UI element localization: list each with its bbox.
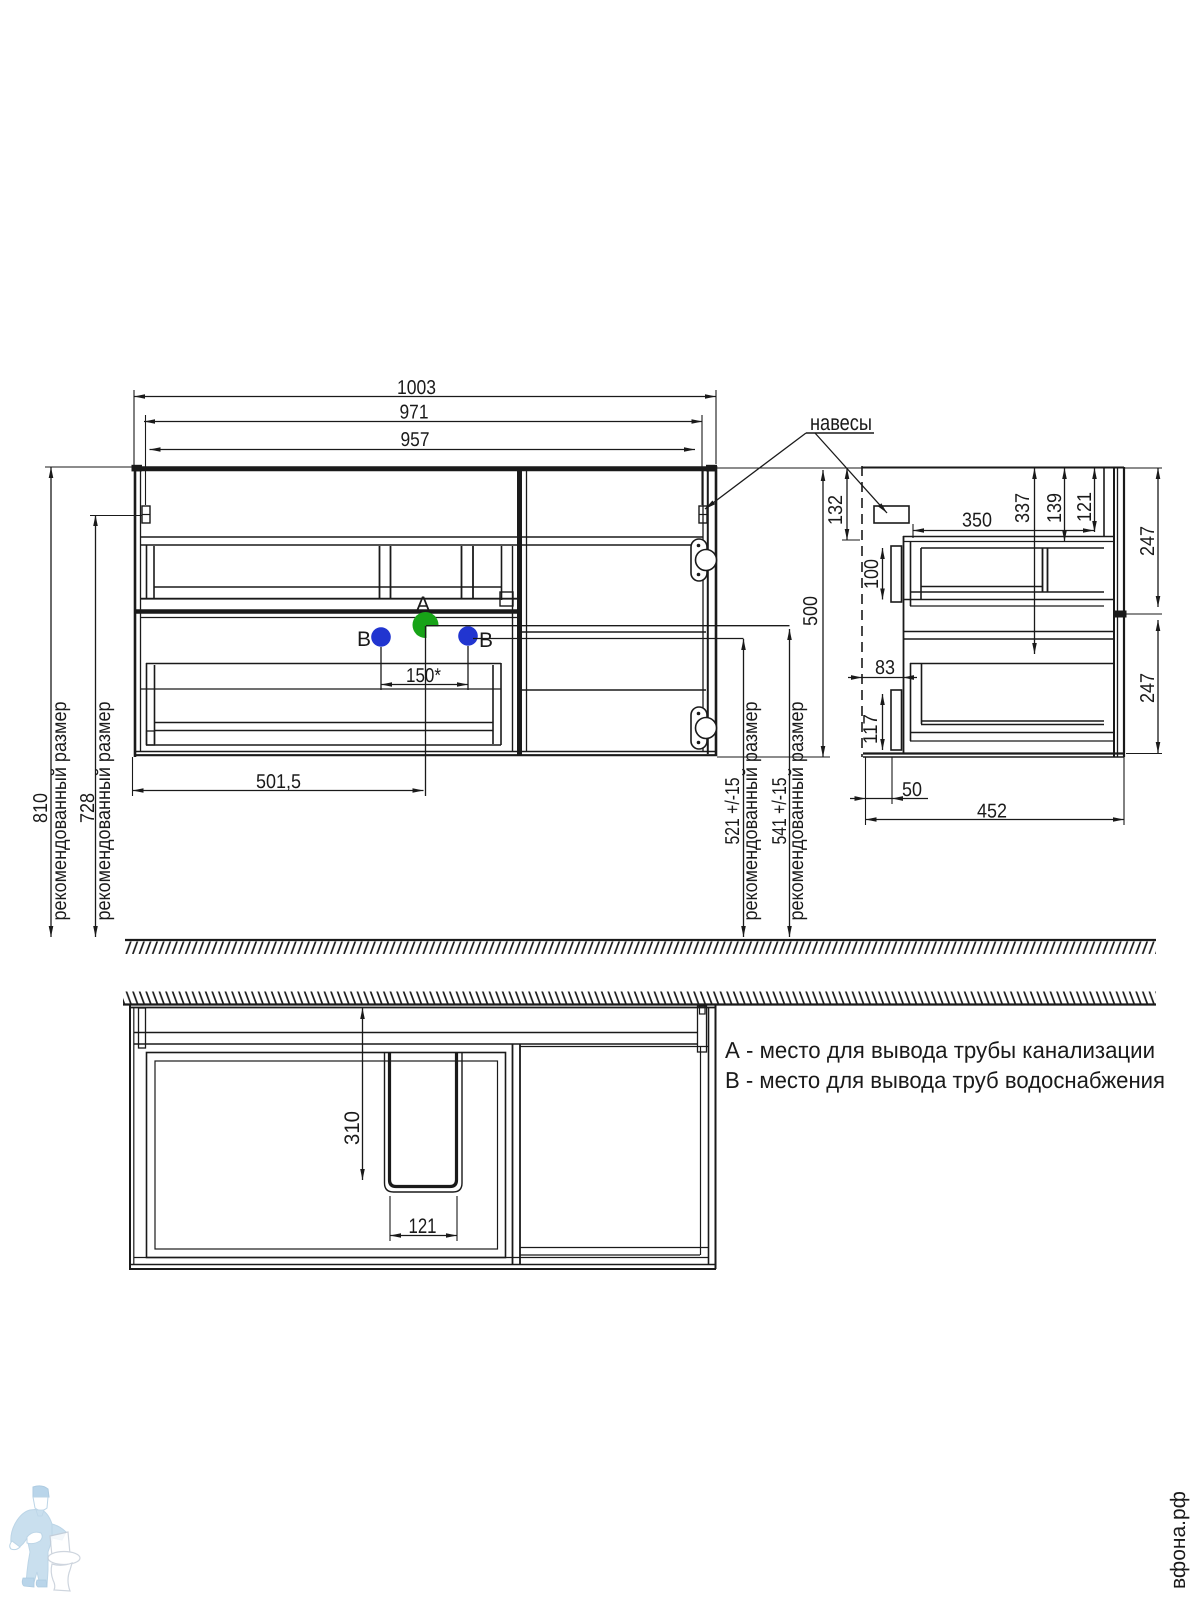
svg-text:121: 121 — [1074, 492, 1096, 522]
svg-text:117: 117 — [860, 714, 882, 744]
svg-text:132: 132 — [825, 495, 847, 525]
svg-text:В - место для вывода труб водо: В - место для вывода труб водоснабжения — [725, 1067, 1165, 1093]
svg-text:501,5: 501,5 — [256, 771, 301, 793]
svg-text:337: 337 — [1012, 493, 1034, 523]
svg-text:310: 310 — [341, 1111, 364, 1145]
svg-text:957: 957 — [401, 429, 430, 451]
svg-text:971: 971 — [400, 402, 429, 424]
svg-text:247: 247 — [1137, 526, 1159, 556]
svg-text:вфона.рф: вфона.рф — [1167, 1491, 1190, 1589]
svg-text:150*: 150* — [406, 665, 441, 687]
svg-text:121: 121 — [409, 1215, 437, 1238]
svg-text:350: 350 — [962, 510, 992, 532]
svg-text:B: B — [357, 628, 371, 651]
svg-text:A: A — [416, 593, 430, 616]
svg-text:50: 50 — [902, 779, 922, 801]
svg-text:500: 500 — [800, 596, 822, 626]
svg-text:83: 83 — [875, 657, 895, 679]
svg-text:навесы: навесы — [810, 410, 872, 435]
svg-text:452: 452 — [977, 801, 1007, 823]
svg-text:1003: 1003 — [397, 377, 436, 399]
svg-text:рекомендованный размер: рекомендованный размер — [93, 702, 115, 921]
svg-text:247: 247 — [1137, 673, 1159, 703]
svg-text:рекомендованный размер: рекомендованный размер — [786, 702, 808, 921]
svg-text:100: 100 — [861, 559, 883, 589]
svg-text:А - место для вывода трубы кан: А - место для вывода трубы канализации — [725, 1037, 1155, 1063]
svg-text:139: 139 — [1044, 493, 1066, 523]
svg-text:рекомендованный размер: рекомендованный размер — [49, 702, 71, 921]
svg-text:рекомендованный размер: рекомендованный размер — [740, 702, 762, 921]
svg-text:B: B — [479, 629, 493, 652]
